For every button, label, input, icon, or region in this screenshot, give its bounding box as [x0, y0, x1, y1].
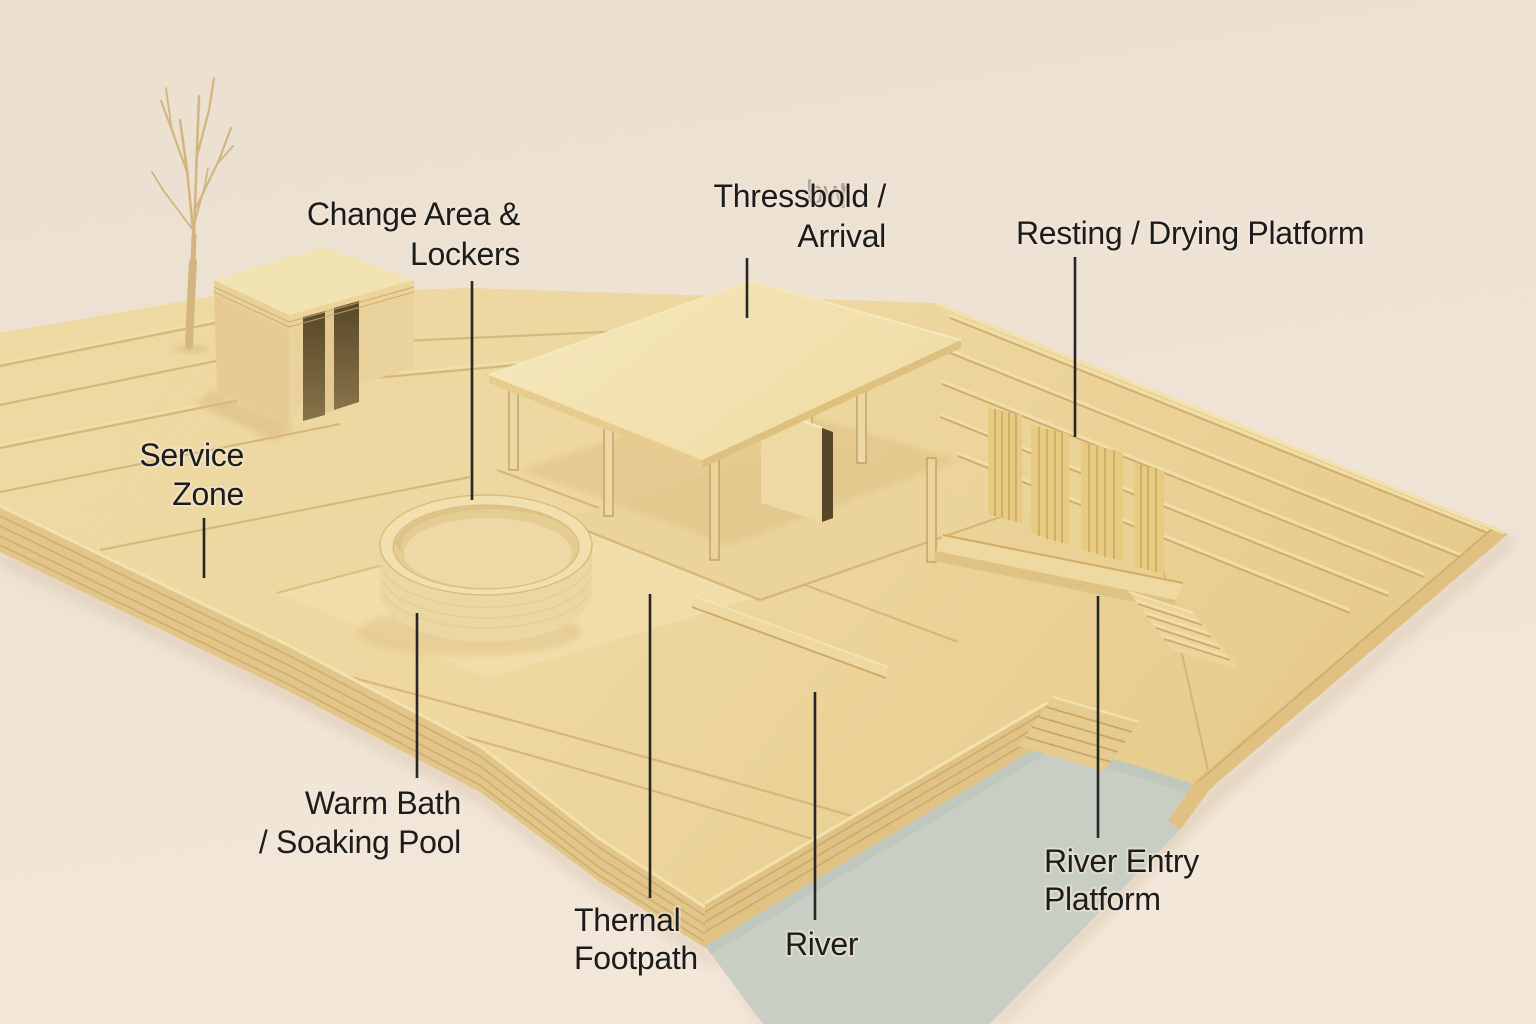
svg-text:Arrival: Arrival — [797, 218, 886, 254]
svg-text:Footpath: Footpath — [574, 940, 698, 976]
svg-text:River Entry: River Entry — [1044, 843, 1199, 879]
svg-text:Resting / Drying Platform: Resting / Drying Platform — [1016, 215, 1364, 251]
svg-text:Warm Bath: Warm Bath — [305, 785, 461, 821]
svg-text:Service: Service — [139, 437, 244, 473]
svg-text:/ Soaking Pool: / Soaking Pool — [259, 824, 461, 860]
svg-text:Change Area &: Change Area & — [307, 196, 520, 232]
svg-text:Lockers: Lockers — [410, 236, 520, 272]
svg-text:Zone: Zone — [172, 476, 244, 512]
svg-text:River: River — [785, 926, 859, 962]
svg-text:Platform: Platform — [1044, 881, 1161, 917]
svg-text:Thernal: Thernal — [574, 902, 680, 938]
svg-text:Thressbold /: Thressbold / — [714, 178, 887, 214]
